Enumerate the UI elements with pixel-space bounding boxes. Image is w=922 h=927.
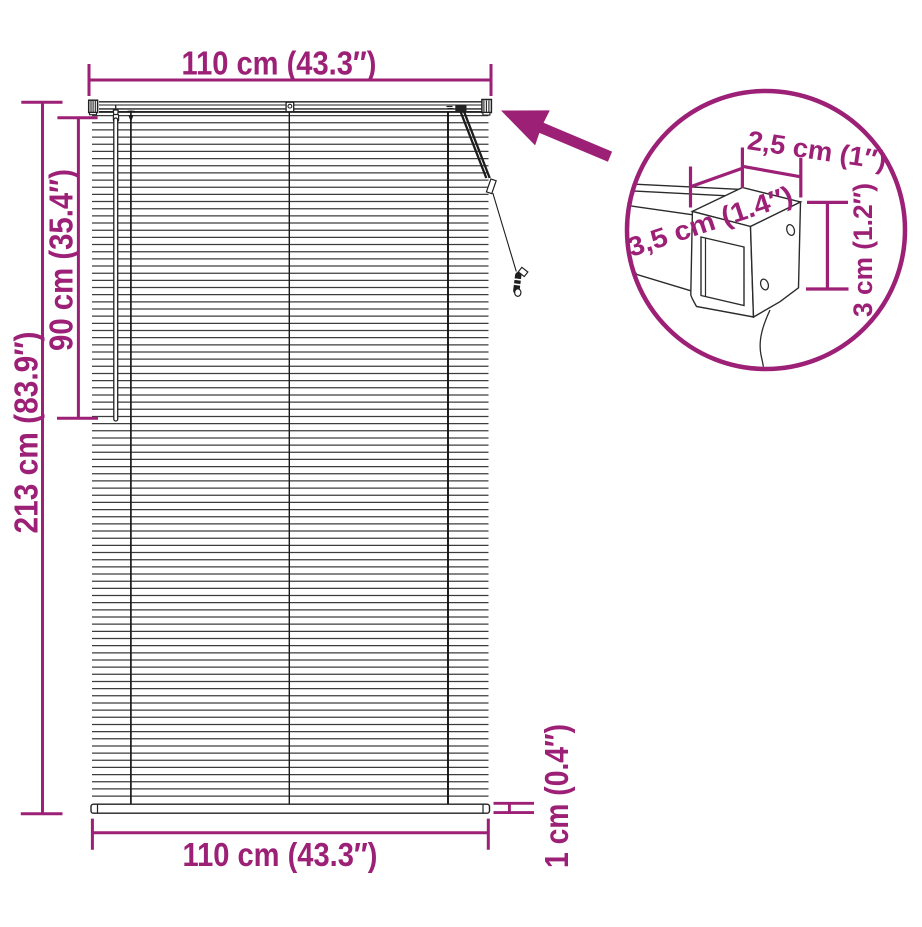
svg-text:3 cm (1.2″): 3 cm (1.2″): [848, 183, 878, 317]
svg-text:213 cm (83.9″): 213 cm (83.9″): [8, 332, 45, 534]
svg-text:90 cm (35.4″): 90 cm (35.4″): [43, 169, 80, 351]
svg-text:110 cm (43.3″): 110 cm (43.3″): [182, 45, 377, 82]
svg-text:1 cm (0.4″): 1 cm (0.4″): [538, 724, 575, 868]
svg-text:110 cm (43.3″): 110 cm (43.3″): [183, 836, 378, 873]
